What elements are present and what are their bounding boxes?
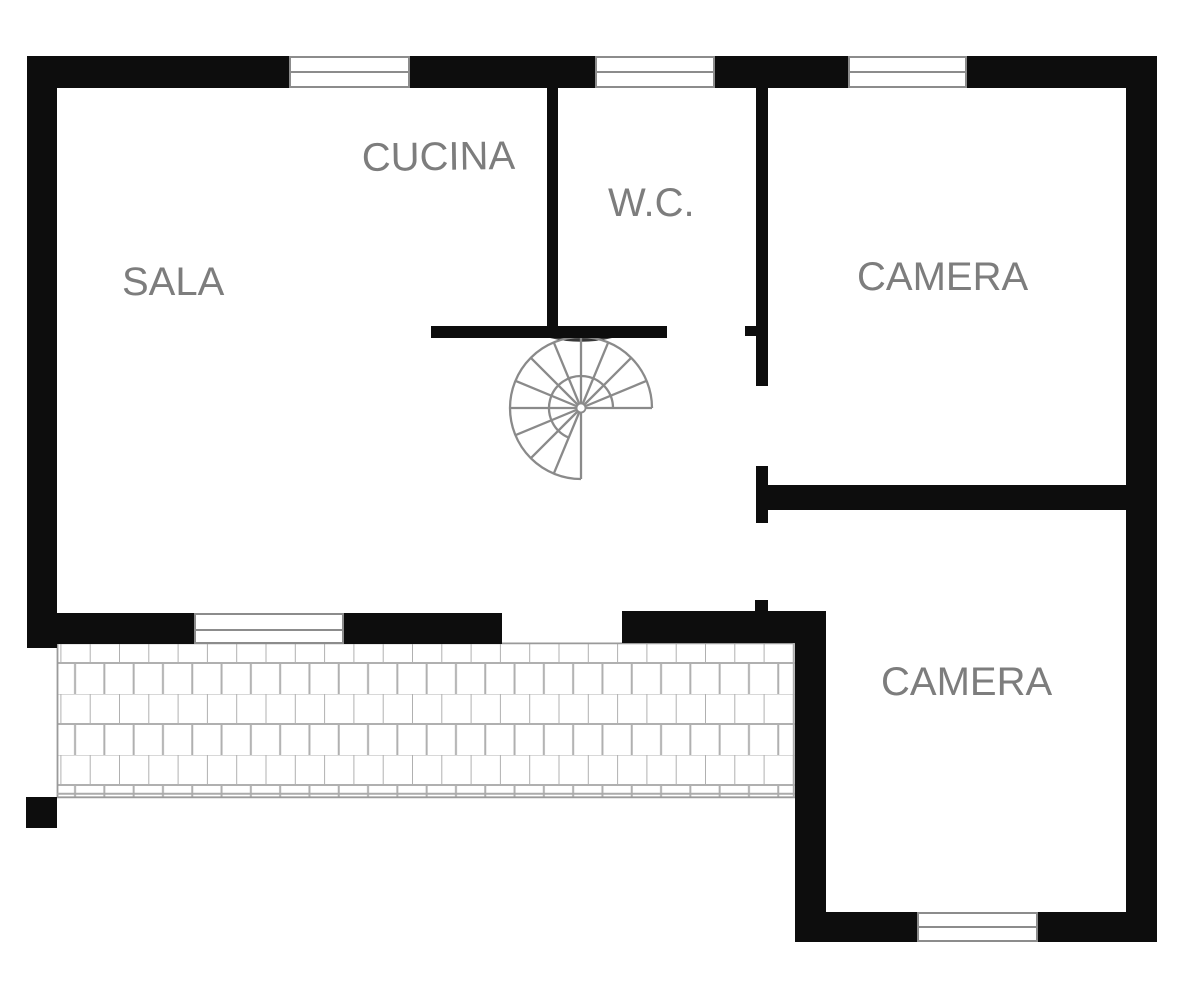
svg-text:CUCINA: CUCINA <box>362 134 516 180</box>
svg-text:W.C.: W.C. <box>608 181 695 225</box>
svg-text:CAMERA: CAMERA <box>857 255 1028 299</box>
svg-text:SALA: SALA <box>122 260 225 304</box>
svg-text:CAMERA: CAMERA <box>881 660 1052 704</box>
